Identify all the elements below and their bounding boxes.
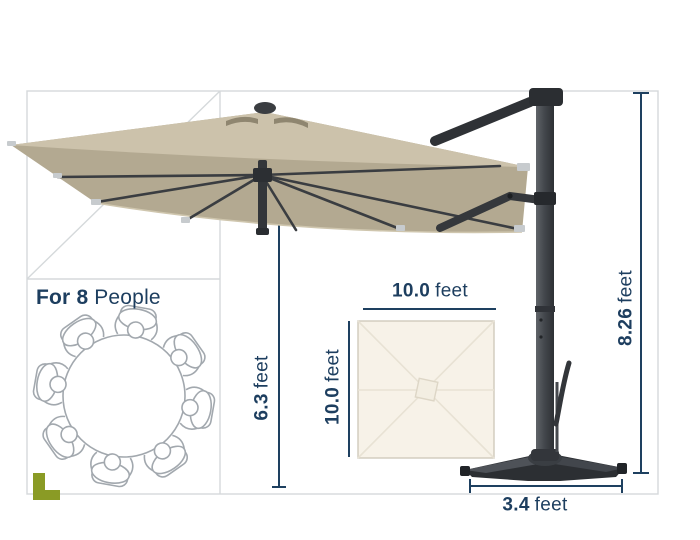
table-8-people-illustration	[32, 304, 217, 489]
upper-support-arm	[435, 102, 530, 141]
pole-top-cap	[529, 88, 563, 106]
base-width-unit: feet	[535, 495, 568, 516]
diagram-canvas	[0, 0, 700, 540]
clearance-height-value: 6.3	[252, 393, 273, 420]
product-dimension-diagram: For 8People 10.0feet 10.0feet 6.3feet 8.…	[0, 0, 700, 540]
capacity-word: People	[94, 286, 161, 309]
base-width-value: 3.4	[502, 495, 529, 516]
tube-tip	[256, 228, 269, 235]
arm-joint-bolt	[507, 193, 512, 198]
canopy-width-unit: feet	[435, 281, 468, 302]
base-width-label: 3.4feet	[502, 496, 567, 515]
pole-hole	[539, 318, 542, 321]
canopy-depth-label: 10.0feet	[324, 349, 343, 425]
pole-joint	[535, 306, 555, 312]
clearance-height-line	[272, 205, 286, 487]
overall-height-label: 8.26feet	[617, 270, 636, 346]
clearance-height-label: 6.3feet	[253, 355, 272, 420]
base-width-line	[470, 479, 622, 493]
table-circle	[63, 335, 185, 457]
clearance-height-unit: feet	[252, 355, 273, 388]
overall-height-value: 8.26	[616, 308, 637, 346]
arm-collar	[534, 192, 556, 205]
canopy-center-patch	[415, 378, 438, 401]
canopy-width-value: 10.0	[392, 281, 430, 302]
capacity-count: For 8	[36, 286, 88, 309]
canopy-depth-value: 10.0	[323, 387, 344, 425]
pole-bottom-collar	[531, 449, 559, 461]
overall-height-unit: feet	[616, 270, 637, 303]
canopy-depth-unit: feet	[323, 349, 344, 382]
canopy-width-label: 10.0feet	[392, 282, 468, 301]
pole	[536, 90, 554, 458]
pole-hole	[539, 335, 542, 338]
corner-mark	[33, 473, 60, 500]
capacity-label: For 8People	[36, 287, 161, 308]
finial	[254, 102, 276, 114]
canopy-topview-illustration	[358, 321, 494, 458]
canopy-hub	[253, 168, 272, 182]
